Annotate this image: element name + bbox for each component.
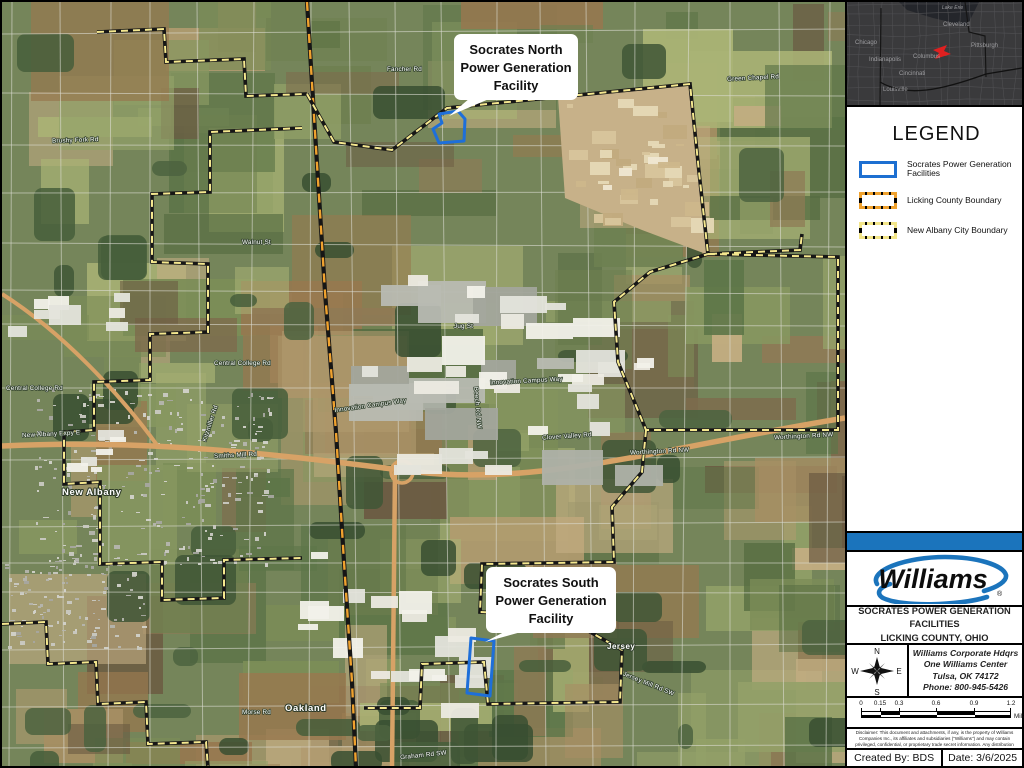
inset-city-label: Chicago <box>855 40 877 46</box>
inset-city-label: Cincinnati <box>899 71 925 77</box>
compass-rose: N S E W <box>847 645 909 696</box>
compass-s: S <box>874 688 879 696</box>
callout-text: Power Generation <box>495 593 606 608</box>
inset-city-label: Pittsburgh <box>971 43 998 49</box>
legend-item-city-boundary: New Albany City Boundary <box>859 222 1016 239</box>
scale-tick: 0 <box>859 700 863 707</box>
scale-bar-segments <box>861 711 1011 718</box>
legend-item-label: Licking County Boundary <box>907 196 1002 205</box>
callout-text: Power Generation <box>460 60 571 75</box>
legend-panel: LEGEND Socrates Power Generation Facilit… <box>847 107 1022 533</box>
scale-unit-label: Miles <box>1014 713 1024 720</box>
callout-text: Facility <box>529 611 575 626</box>
compass-e: E <box>896 667 901 676</box>
compass-w: W <box>851 667 859 676</box>
inset-city-label: Indianapolis <box>869 57 901 63</box>
inset-city-label: Cleveland <box>943 22 970 28</box>
map-title-line1: SOCRATES POWER GENERATION FACILITIES <box>847 605 1022 632</box>
legend-item-label: Socrates Power Generation Facilities <box>907 160 1016 179</box>
company-logo: Williams ® <box>847 552 1022 607</box>
road-label: Fancher Rd <box>387 66 422 73</box>
road-label: Walnut St <box>242 239 271 246</box>
map-title-block: SOCRATES POWER GENERATION FACILITIES LIC… <box>847 607 1022 645</box>
lake-label: Lake Erie <box>942 6 963 11</box>
registered-mark: ® <box>997 590 1003 598</box>
scale-tick: 0.3 <box>895 700 904 707</box>
compass-n: N <box>874 647 880 656</box>
disclaimer-text: Disclaimer: This document and attachment… <box>852 730 1017 750</box>
legend-item-facilities: Socrates Power Generation Facilities <box>859 160 1016 179</box>
disclaimer-block: Disclaimer: This document and attachment… <box>847 729 1022 750</box>
address-line: One Williams Center <box>924 659 1008 670</box>
scale-tick: 1.2 <box>1007 700 1016 707</box>
road-label: Central College Rd <box>214 360 271 367</box>
regional-inset-map: Lake Erie Chicago Cleveland Pittsburgh I… <box>847 2 1022 107</box>
map-sheet: Green Chapel Rd Fancher Rd Brushy Fork R… <box>0 0 1024 768</box>
satellite-map: Green Chapel Rd Fancher Rd Brushy Fork R… <box>2 2 845 768</box>
williams-logo-icon: Williams ® <box>859 554 1011 604</box>
callout-socrates-south: Socrates South Power Generation Facility <box>485 567 616 642</box>
scale-tick: 0.9 <box>970 700 979 707</box>
legend-item-county-boundary: Licking County Boundary <box>859 192 1016 209</box>
inset-city-label: Columbus <box>913 54 940 60</box>
place-label-oakland: Oakland <box>285 703 327 714</box>
blue-rectangle-swatch <box>859 161 897 178</box>
road-label: Central College Rd <box>6 385 63 392</box>
callout-text: Socrates North <box>469 42 562 57</box>
scale-tick: 0.15 <box>874 700 886 707</box>
legend-title: LEGEND <box>857 123 1016 146</box>
road-label: Jug St <box>454 323 473 330</box>
map-title-line2: LICKING COUNTY, OHIO <box>881 632 989 645</box>
date-cell: Date: 3/6/2025 <box>943 750 1022 766</box>
road-label: Morse Rd <box>242 709 271 716</box>
legend-item-label: New Albany City Boundary <box>907 226 1008 235</box>
address-line: Phone: 800-945-5426 <box>923 682 1008 693</box>
scale-tick: 0.6 <box>932 700 941 707</box>
scale-bar: 0 0.15 0.3 0.6 0.9 1.2 Miles <box>861 700 1011 722</box>
address-line: Tulsa, OK 74172 <box>932 671 998 682</box>
accent-bar <box>847 533 1022 552</box>
compass-address-row: N S E W Williams Corporate Hdqrs One Wil… <box>847 645 1022 698</box>
compass-rose-icon: N S E W <box>851 646 903 696</box>
place-label-new-albany: New Albany <box>62 487 122 498</box>
created-by-cell: Created By: BDS <box>847 750 943 766</box>
orange-dashed-swatch <box>859 192 897 209</box>
address-line: Williams Corporate Hdqrs <box>913 648 1018 659</box>
map-canvas: Green Chapel Rd Fancher Rd Brushy Fork R… <box>0 0 845 768</box>
scale-bar-section: 0 0.15 0.3 0.6 0.9 1.2 Miles <box>847 698 1022 729</box>
callout-text: Socrates South <box>503 575 598 590</box>
corporate-address-block: Williams Corporate Hdqrs One Williams Ce… <box>909 645 1022 696</box>
footer-row: Created By: BDS Date: 3/6/2025 <box>847 750 1022 766</box>
place-label-jersey: Jersey <box>607 642 635 651</box>
logo-text: Williams <box>878 564 987 594</box>
map-sidebar: Lake Erie Chicago Cleveland Pittsburgh I… <box>845 0 1024 768</box>
callout-text: Facility <box>494 78 540 93</box>
inset-city-label: Louisville <box>883 87 908 93</box>
yellow-dashed-swatch <box>859 222 897 239</box>
